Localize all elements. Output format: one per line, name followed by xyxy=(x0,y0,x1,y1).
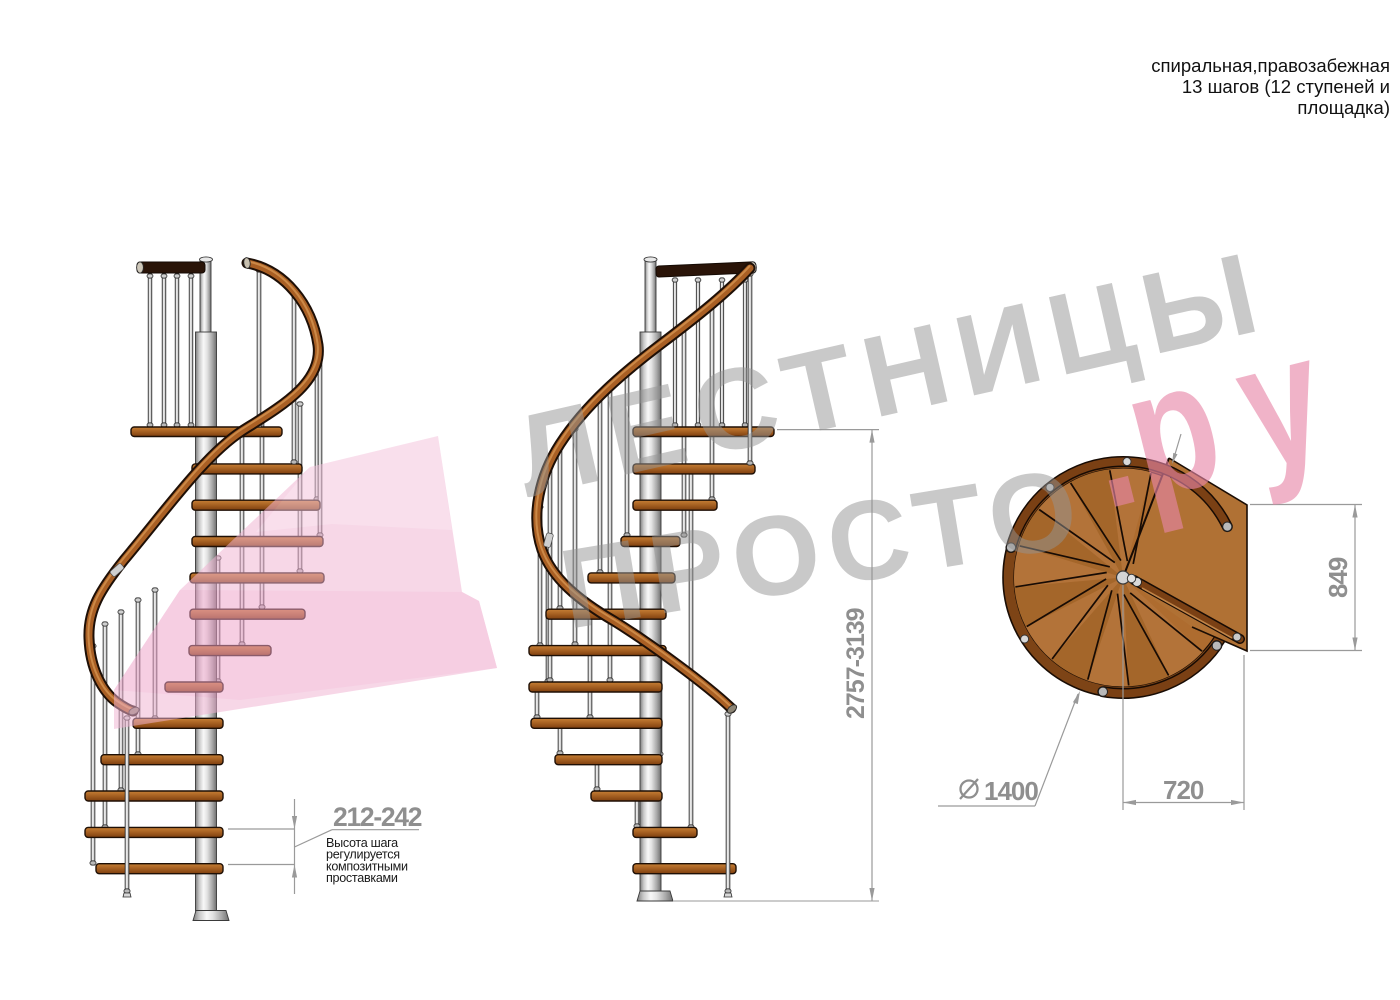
svg-text:13 шагов (12 ступеней и: 13 шагов (12 ступеней и xyxy=(1182,76,1390,97)
svg-text:720: 720 xyxy=(1163,775,1204,805)
svg-text:проставками: проставками xyxy=(326,871,398,885)
svg-text:212-242: 212-242 xyxy=(333,802,422,832)
svg-text:1400: 1400 xyxy=(984,776,1038,806)
svg-text:площадка): площадка) xyxy=(1297,97,1390,118)
svg-text:спиральная,правозабежная: спиральная,правозабежная xyxy=(1151,55,1390,76)
svg-text:2757-3139: 2757-3139 xyxy=(842,608,870,719)
svg-text:849: 849 xyxy=(1323,557,1353,598)
